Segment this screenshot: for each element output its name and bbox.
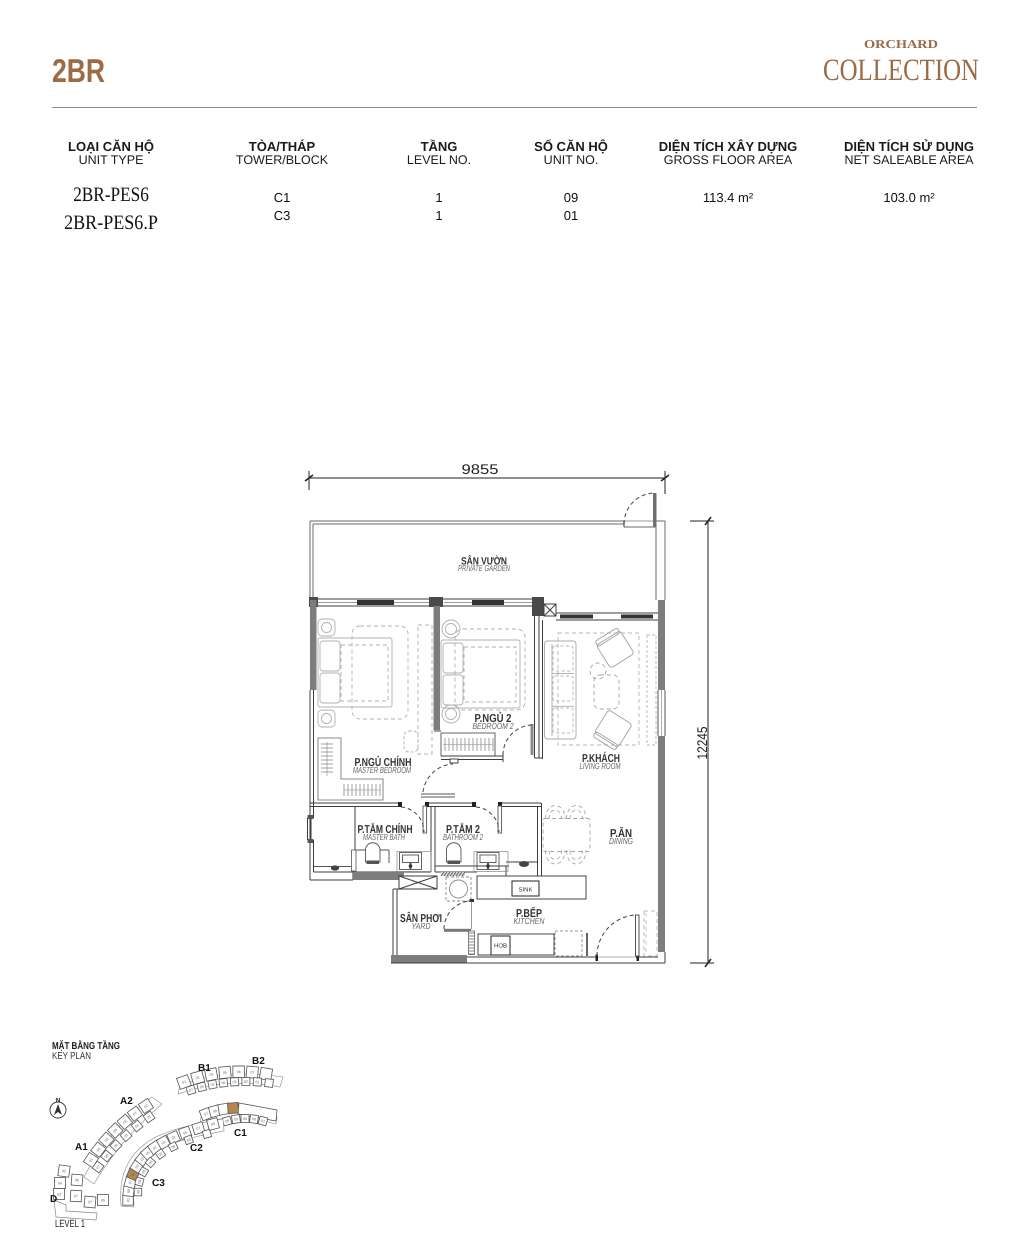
svg-text:B1: B1 [198, 1063, 211, 1074]
svg-text:01: 01 [126, 1198, 130, 1202]
svg-text:03: 03 [234, 1117, 239, 1122]
svg-text:06: 06 [252, 1117, 257, 1122]
svg-text:09: 09 [136, 1190, 140, 1194]
svg-text:07: 07 [74, 1194, 78, 1198]
svg-text:LEVEL 1: LEVEL 1 [55, 1218, 85, 1230]
svg-text:A1: A1 [75, 1142, 88, 1153]
svg-text:02: 02 [62, 1169, 67, 1174]
svg-text:03: 03 [233, 1080, 237, 1084]
svg-text:02: 02 [244, 1080, 248, 1084]
svg-text:B2: B2 [252, 1056, 265, 1067]
svg-text:05: 05 [101, 1198, 105, 1202]
svg-text:03: 03 [210, 1082, 215, 1087]
svg-text:03: 03 [57, 1192, 61, 1196]
svg-text:05: 05 [243, 1117, 247, 1121]
svg-text:D: D [50, 1194, 57, 1205]
svg-text:C2: C2 [190, 1143, 203, 1154]
svg-text:07: 07 [250, 1070, 254, 1074]
svg-text:08: 08 [127, 1189, 131, 1193]
svg-text:07: 07 [88, 1200, 92, 1204]
svg-text:N: N [56, 1097, 60, 1104]
svg-text:05: 05 [223, 1071, 227, 1075]
svg-text:06: 06 [237, 1070, 241, 1074]
svg-text:A2: A2 [120, 1096, 133, 1107]
svg-text:04: 04 [58, 1181, 62, 1185]
svg-text:C1: C1 [234, 1128, 247, 1139]
svg-text:KEY PLAN: KEY PLAN [52, 1051, 91, 1062]
svg-text:C3: C3 [152, 1178, 165, 1189]
svg-text:01: 01 [255, 1080, 259, 1084]
svg-text:06: 06 [75, 1178, 79, 1182]
svg-text:05: 05 [221, 1081, 225, 1085]
